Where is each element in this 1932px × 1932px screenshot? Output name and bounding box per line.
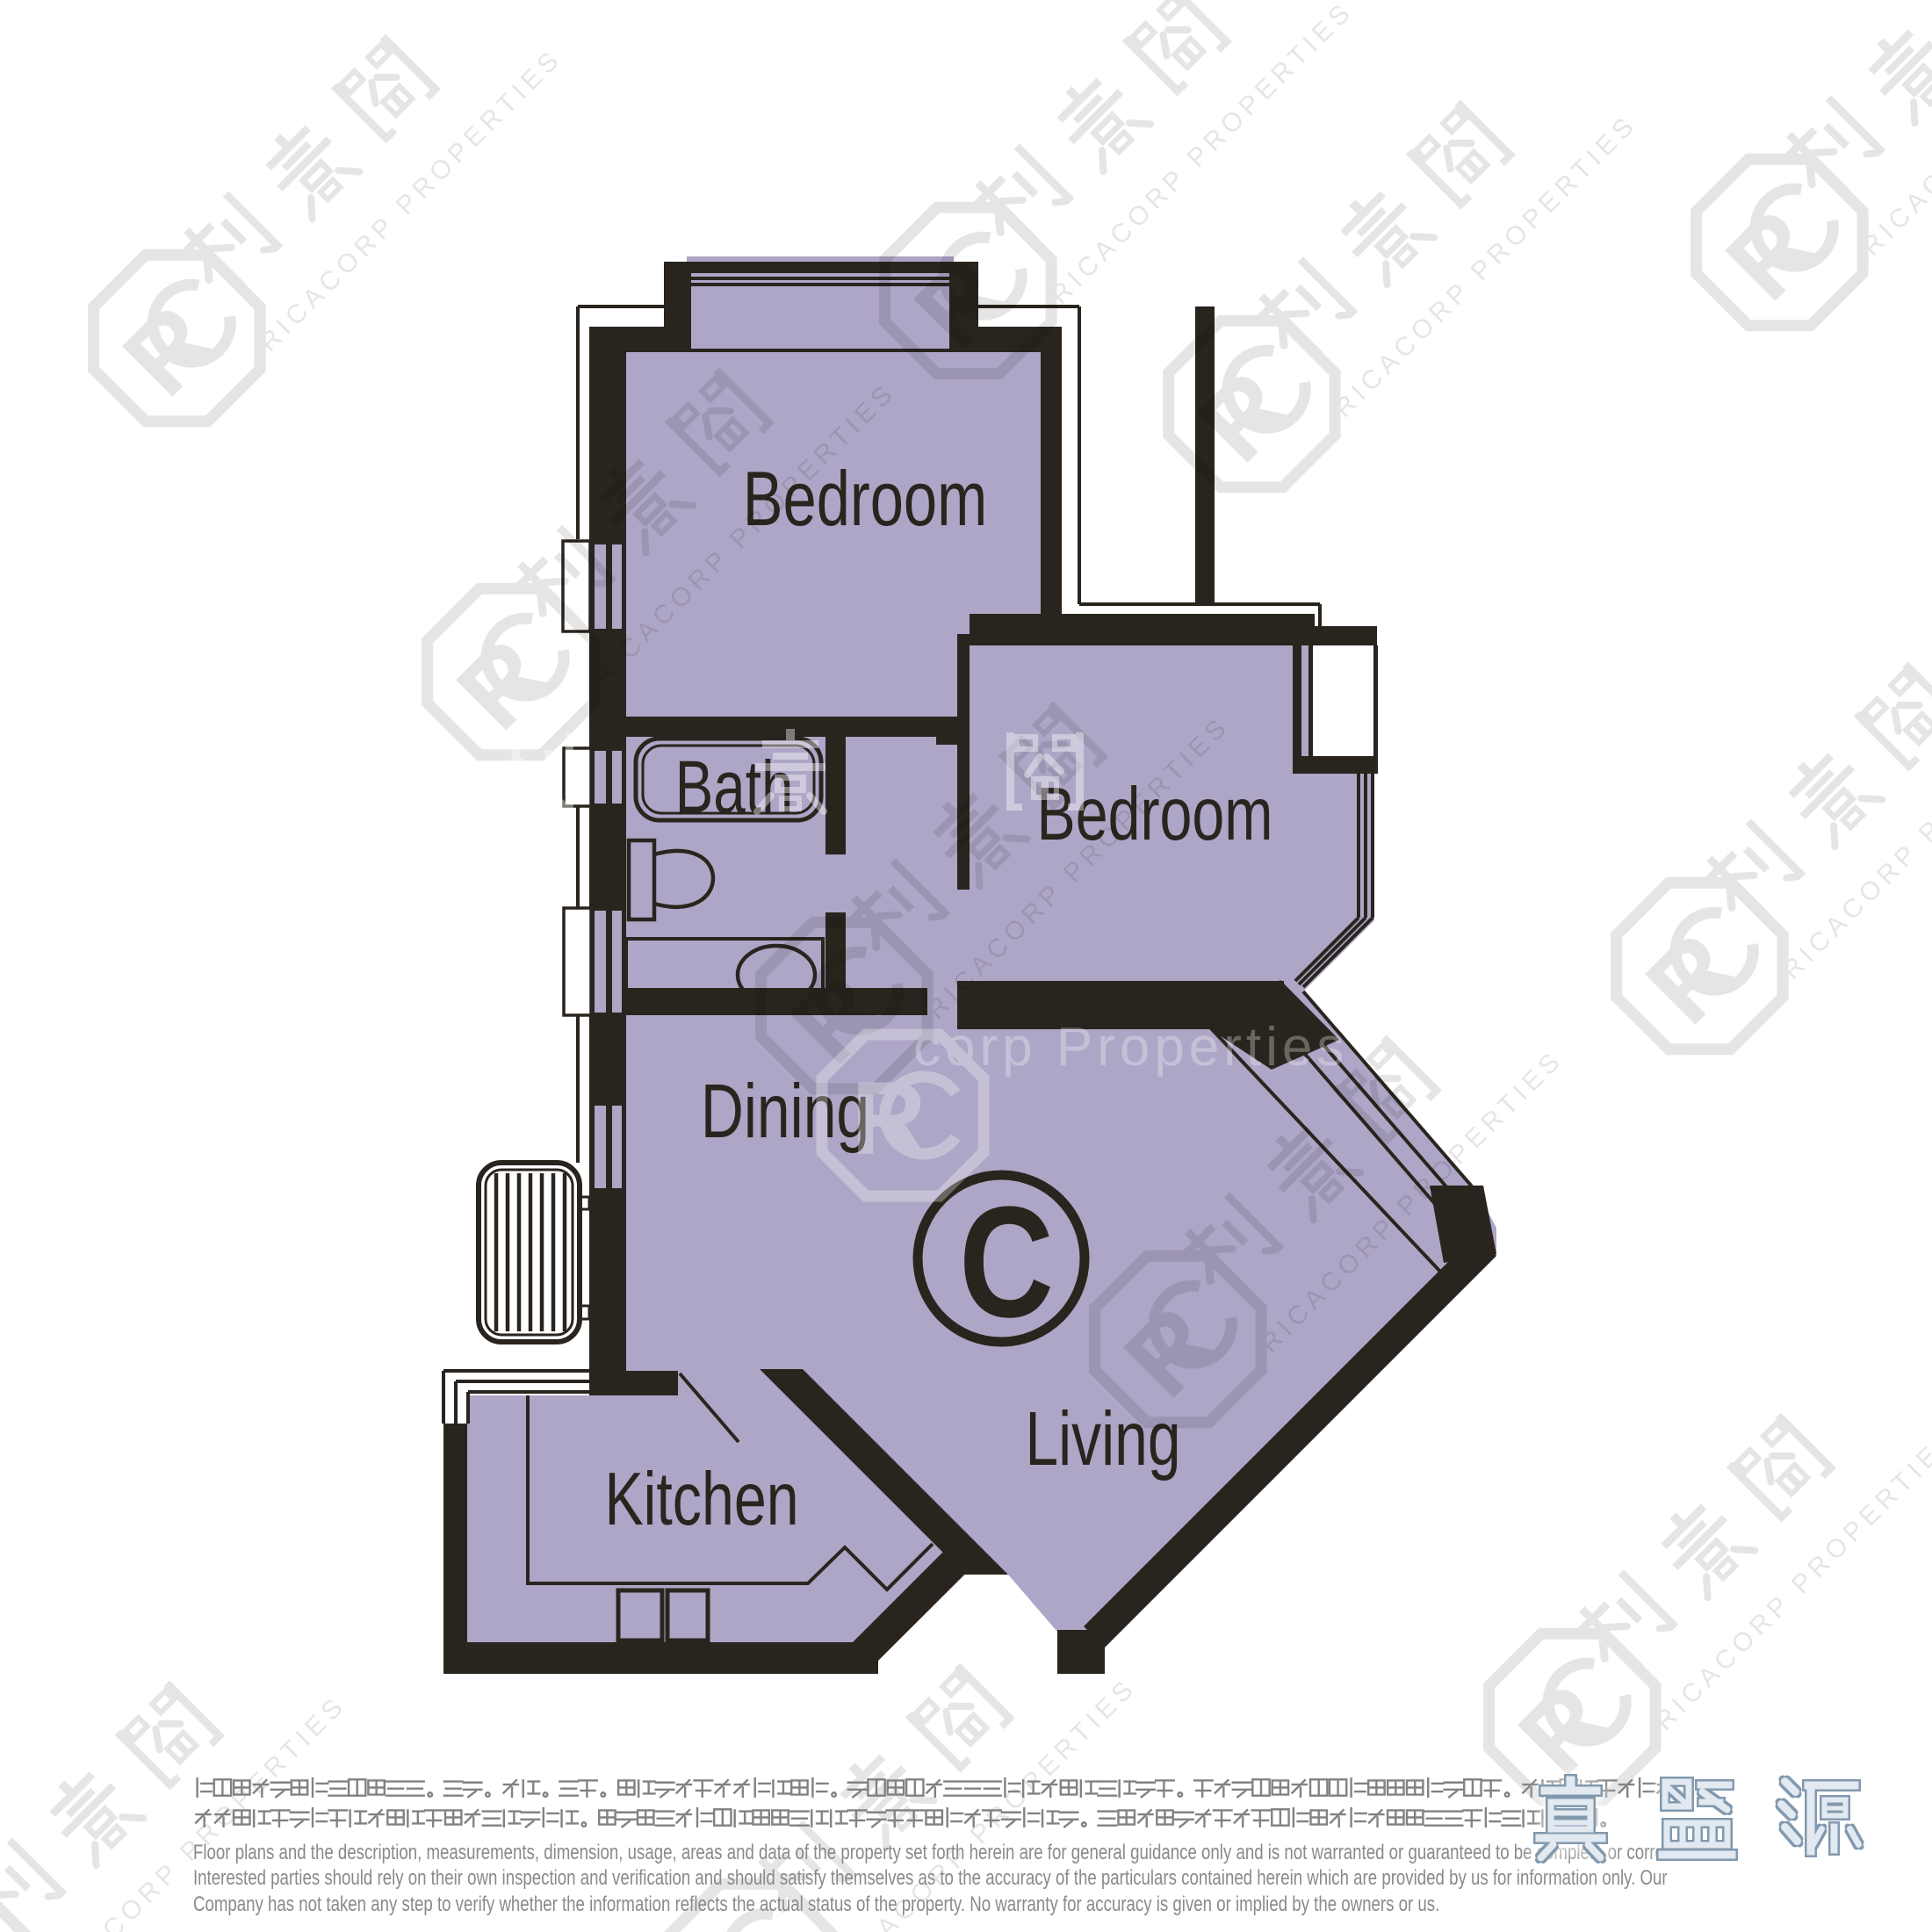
- svg-text:Interested parties should rely: Interested parties should rely on their …: [193, 1865, 1668, 1890]
- svg-text:Kitchen: Kitchen: [604, 1458, 798, 1541]
- svg-text:Living: Living: [1025, 1395, 1180, 1481]
- svg-text:corp Properties: corp Properties: [913, 1017, 1348, 1078]
- svg-text:Dining: Dining: [701, 1068, 869, 1154]
- svg-text:Floor plans and the descriptio: Floor plans and the description, measure…: [193, 1840, 1682, 1864]
- svg-text:C: C: [959, 1174, 1054, 1351]
- svg-text:Company has not taken any step: Company has not taken any step to verify…: [193, 1892, 1439, 1916]
